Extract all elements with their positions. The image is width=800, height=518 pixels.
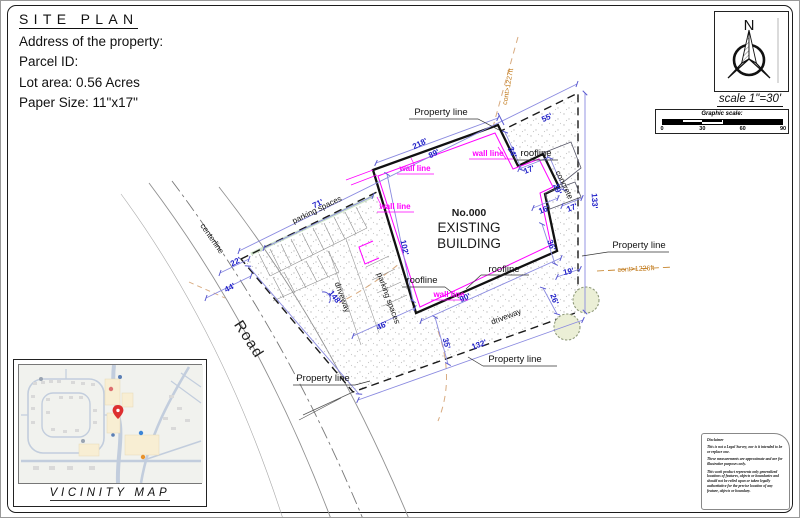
graphic-scale-ticks: 0306090 bbox=[662, 126, 783, 133]
graphic-scale-tick: 60 bbox=[740, 126, 746, 132]
label-contour-1227: cont>1227ft bbox=[502, 68, 515, 105]
sheet: Property lineProperty lineProperty lineP… bbox=[0, 0, 800, 518]
label-wall-line-3: wall line bbox=[378, 202, 411, 211]
label-building-number: No.000 bbox=[452, 207, 487, 219]
paper-size-label: Paper Size: 11"x17" bbox=[19, 93, 163, 113]
disclaimer-paragraph: This work product represents only genera… bbox=[707, 470, 784, 494]
graphic-scale-tick: 0 bbox=[660, 126, 663, 132]
graphic-scale-tick: 30 bbox=[699, 126, 705, 132]
graphic-scale-tick: 90 bbox=[780, 126, 786, 132]
title-block: SITE PLAN Address of the property: Parce… bbox=[19, 11, 163, 113]
vicinity-map-box: VICINITY MAP bbox=[13, 359, 207, 507]
disclaimer-paragraph: This is not a Legal Survey, nor is it in… bbox=[707, 445, 784, 455]
graphic-scale-bar bbox=[662, 119, 783, 125]
disclaimer-box: Disclaimer This is not a Legal Survey, n… bbox=[701, 433, 790, 510]
scale-label: scale 1"=30' bbox=[706, 93, 794, 105]
label-wall-line-1: wall line bbox=[471, 149, 504, 158]
address-label: Address of the property: bbox=[19, 32, 163, 52]
label-property-line-right: Property line bbox=[612, 240, 665, 251]
dimension-22ft: 22' bbox=[229, 255, 243, 268]
label-property-line-bottom-right: Property line bbox=[488, 354, 541, 365]
vicinity-map[interactable] bbox=[19, 365, 203, 483]
label-property-line-top: Property line bbox=[414, 107, 467, 118]
lot-area-label: Lot area: 0.56 Acres bbox=[19, 73, 163, 93]
label-road: Road bbox=[230, 317, 267, 361]
page-title: SITE PLAN bbox=[19, 11, 138, 29]
label-centerline: centerline bbox=[198, 222, 226, 256]
label-contour-1226: cont>1226ft bbox=[617, 265, 654, 274]
dimension-44ft: 44' bbox=[223, 281, 237, 294]
label-roofline-left: roofline bbox=[406, 275, 437, 286]
graphic-scale-title: Graphic scale: bbox=[656, 110, 788, 118]
north-arrow-box: N bbox=[714, 11, 789, 92]
north-arrow-icon: N bbox=[715, 12, 786, 89]
label-property-line-bottom-left: Property line bbox=[296, 373, 349, 384]
label-building-line1: EXISTING bbox=[437, 220, 500, 235]
vicinity-map-label: VICINITY MAP bbox=[18, 487, 202, 499]
graphic-scale: Graphic scale: 0306090 bbox=[655, 109, 789, 134]
disclaimer-paragraph: These measurements are approximate and a… bbox=[707, 457, 784, 467]
dimension-133ft: 133' bbox=[590, 193, 600, 209]
label-wall-line-2: wall line bbox=[398, 164, 431, 173]
disclaimer-body: This is not a Legal Survey, nor is it in… bbox=[707, 445, 784, 493]
label-roofline-top: roofline bbox=[520, 148, 551, 159]
label-roofline-center: roofline bbox=[488, 264, 519, 275]
parcel-id-label: Parcel ID: bbox=[19, 52, 163, 72]
label-building-line2: BUILDING bbox=[437, 236, 501, 251]
dimension-218ft: 218' bbox=[411, 136, 429, 151]
disclaimer-title: Disclaimer bbox=[707, 438, 784, 443]
